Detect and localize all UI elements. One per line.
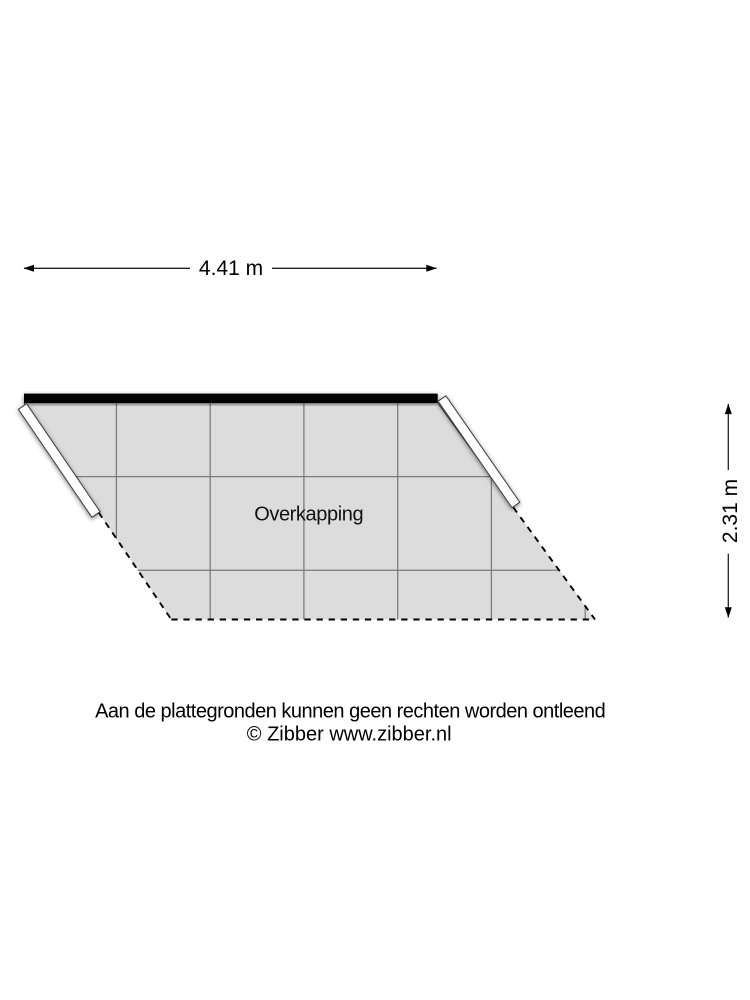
svg-text:Aan de plattegronden kunnen ge: Aan de plattegronden kunnen geen rechten… bbox=[95, 701, 605, 723]
svg-text:Overkapping: Overkapping bbox=[254, 504, 363, 526]
svg-text:4.41 m: 4.41 m bbox=[199, 257, 263, 280]
svg-text:2.31 m: 2.31 m bbox=[719, 479, 742, 543]
svg-text:© Zibber www.zibber.nl: © Zibber www.zibber.nl bbox=[247, 724, 452, 746]
